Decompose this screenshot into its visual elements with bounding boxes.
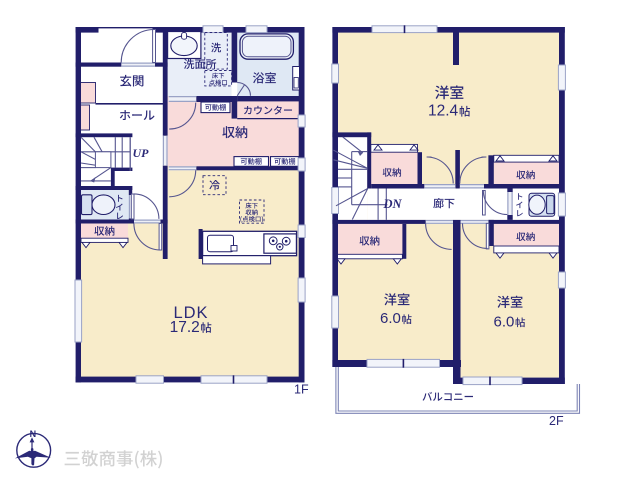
svg-text:12.4: 12.4 (428, 103, 459, 120)
svg-text:2F: 2F (549, 414, 564, 428)
svg-text:1F: 1F (294, 382, 309, 396)
svg-text:6.0: 6.0 (494, 313, 515, 330)
svg-text:UP: UP (133, 146, 150, 160)
svg-text:17.2: 17.2 (170, 319, 200, 336)
svg-text:DN: DN (383, 197, 403, 211)
svg-text:N: N (30, 429, 37, 439)
svg-text:6.0: 6.0 (380, 310, 401, 327)
